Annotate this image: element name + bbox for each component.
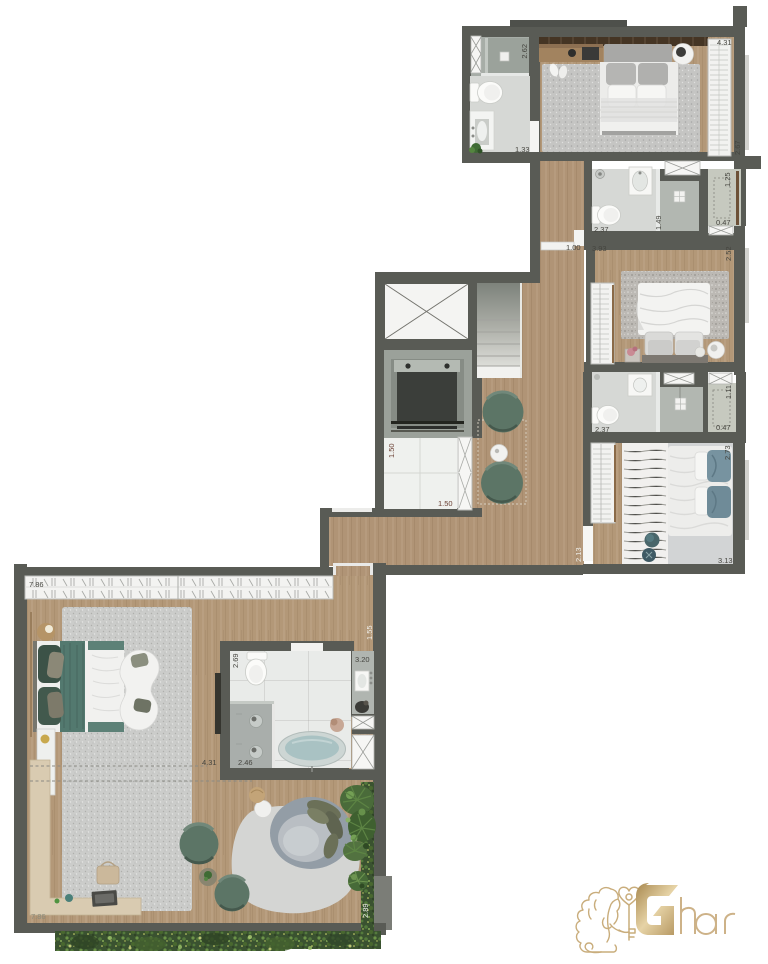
svg-text:2.37: 2.37 <box>595 425 610 434</box>
svg-text:3.93: 3.93 <box>592 244 607 253</box>
svg-text:0.47: 0.47 <box>716 423 731 432</box>
svg-text:1.11: 1.11 <box>724 385 733 399</box>
svg-text:1.55: 1.55 <box>365 625 374 640</box>
svg-text:1.49: 1.49 <box>654 215 663 230</box>
svg-text:1.00: 1.00 <box>566 243 581 252</box>
svg-text:7.86: 7.86 <box>31 912 46 921</box>
svg-text:2.52: 2.52 <box>724 246 733 261</box>
svg-text:2.46: 2.46 <box>238 758 253 767</box>
svg-text:2.13: 2.13 <box>574 547 583 562</box>
svg-text:1.33: 1.33 <box>515 145 530 154</box>
svg-text:2.62: 2.62 <box>520 44 529 59</box>
svg-text:1.25: 1.25 <box>723 172 732 187</box>
svg-text:2.89: 2.89 <box>361 903 370 918</box>
svg-text:4.31: 4.31 <box>717 38 732 47</box>
svg-text:2.73: 2.73 <box>723 445 732 460</box>
svg-text:3.13: 3.13 <box>718 556 733 565</box>
svg-text:2.69: 2.69 <box>231 653 240 668</box>
svg-text:4.31: 4.31 <box>202 758 217 767</box>
svg-text:2.37: 2.37 <box>594 225 609 234</box>
svg-text:7.86: 7.86 <box>29 580 44 589</box>
svg-text:1.50: 1.50 <box>438 499 453 508</box>
svg-text:3.20: 3.20 <box>355 655 370 664</box>
svg-text:0.47: 0.47 <box>716 218 731 227</box>
svg-text:2.67: 2.67 <box>733 140 742 155</box>
svg-text:1.50: 1.50 <box>387 443 396 458</box>
